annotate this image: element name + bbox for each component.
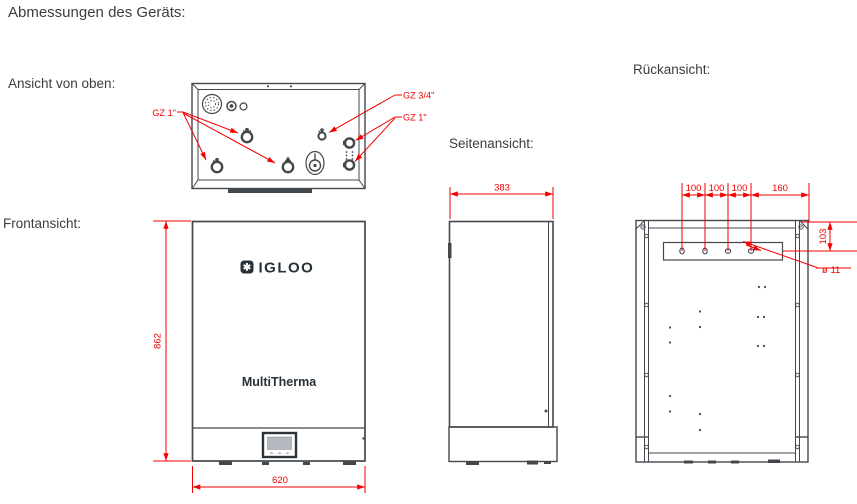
hole-dia-leader	[743, 242, 817, 268]
fitting-c-1inch	[283, 157, 293, 173]
rear-view-label: Rückansicht:	[633, 62, 710, 77]
side-view-label: Seitenansicht:	[449, 136, 534, 151]
igloo-logo: ✱ IGLOO	[241, 260, 315, 277]
rear-panel-holes	[669, 286, 766, 431]
gz34-label: GZ 3/4"	[403, 91, 434, 101]
depth-dim-value: 383	[494, 183, 510, 194]
offset-dim-value: 103	[818, 229, 829, 245]
gz1-right-label: GZ 1"	[403, 113, 427, 123]
gz1-left-label: GZ 1"	[152, 108, 176, 118]
spacing-dim-4: 160	[772, 183, 788, 194]
front-view-drawing: ✱ IGLOO MultiTherma	[193, 222, 366, 466]
top-view-callouts: GZ 1" GZ 3/4" GZ 1"	[152, 91, 434, 164]
fitting-f-1inch	[343, 160, 354, 169]
screw-dots-grid	[346, 151, 354, 160]
top-view-drawing	[192, 84, 365, 194]
spacing-dim-1: 100	[686, 183, 702, 194]
snowflake-icon: ✱	[243, 263, 252, 274]
corner-screws	[641, 225, 803, 449]
hole-dia-value: ø 11	[822, 265, 840, 276]
fitting-d-34inch	[318, 128, 325, 139]
model-text: MultiTherma	[242, 375, 317, 389]
gz1-right-leader-f	[355, 118, 395, 162]
gz34-leader	[329, 95, 395, 133]
front-view-label: Frontansicht:	[3, 216, 81, 231]
rear-view-drawing	[636, 221, 808, 464]
control-display	[263, 433, 296, 457]
spacing-dim-2: 100	[709, 183, 725, 194]
brand-text: IGLOO	[259, 260, 315, 277]
small-port	[240, 103, 247, 110]
wall-bracket-mark	[448, 243, 452, 258]
fan-vent	[203, 95, 222, 114]
width-dim-value: 620	[272, 475, 288, 486]
side-base	[449, 427, 557, 462]
fitting-e-1inch	[343, 138, 354, 147]
page-title: Abmessungen des Geräts:	[8, 4, 186, 21]
rear-dimensions: 100 100 100 160 103 ø 11	[682, 183, 857, 276]
small-ring-port	[227, 102, 236, 111]
height-dim-value: 862	[153, 333, 164, 349]
gz1-leader-c	[183, 113, 275, 163]
mounting-bracket	[664, 243, 783, 261]
safety-valve-oval	[306, 152, 324, 175]
gz1-right-leader-e	[356, 117, 396, 141]
fitting-b-1inch	[212, 158, 222, 172]
fitting-a-1inch	[242, 128, 252, 142]
top-view-label: Ansicht von oben:	[8, 76, 115, 91]
side-dimensions: 383	[450, 183, 553, 220]
spacing-dim-3: 100	[732, 183, 748, 194]
device-dimensions-page: Abmessungen des Geräts: Ansicht von oben…	[0, 0, 857, 504]
top-foot-strip	[228, 189, 312, 194]
side-view-drawing	[448, 222, 557, 466]
technical-drawing: Abmessungen des Geräts: Ansicht von oben…	[0, 0, 857, 504]
display-screen	[268, 437, 292, 450]
